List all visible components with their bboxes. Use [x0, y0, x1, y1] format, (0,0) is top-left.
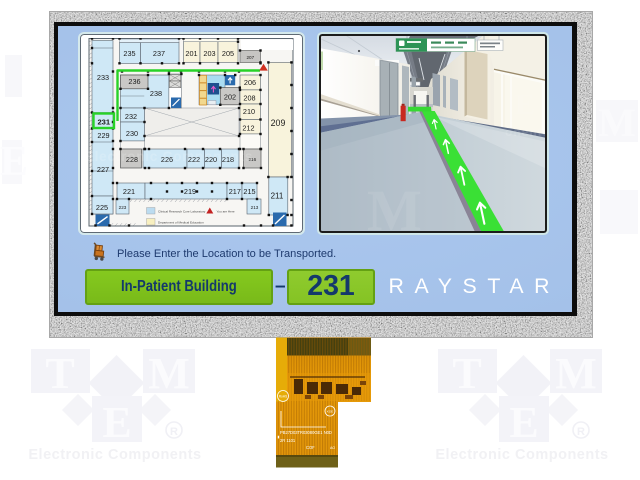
svg-text:M: M [148, 349, 190, 398]
svg-text:227: 227 [97, 165, 109, 174]
svg-text:225: 225 [96, 203, 108, 212]
svg-text:229: 229 [97, 131, 109, 140]
svg-text:209: 209 [271, 118, 286, 128]
svg-text:PB27D03TR03080GE1 N0D: PB27D03TR03080GE1 N0D [280, 430, 332, 435]
svg-text:206: 206 [244, 78, 256, 87]
svg-text:M: M [555, 349, 597, 398]
svg-text:R: R [577, 426, 585, 438]
svg-text:221: 221 [123, 187, 135, 196]
svg-text:Clinical Research Core Laborat: Clinical Research Core Laboratory [158, 210, 206, 214]
svg-text:T: T [452, 349, 481, 398]
svg-text:E: E [509, 398, 538, 447]
svg-text:AO: AO [330, 446, 335, 450]
svg-text:COF: COF [306, 445, 315, 450]
svg-text:You are Here: You are Here [217, 210, 235, 214]
svg-text:Electronic Components: Electronic Components [28, 447, 201, 463]
svg-text:201: 201 [185, 49, 197, 58]
svg-text:R: R [170, 426, 178, 438]
svg-text:211: 211 [271, 192, 284, 201]
svg-text:233: 233 [97, 73, 109, 82]
svg-text:236: 236 [128, 77, 140, 86]
svg-text:231: 231 [97, 118, 110, 127]
svg-text:217: 217 [229, 187, 241, 196]
svg-text:onents: onents [505, 125, 547, 139]
svg-text:T: T [45, 349, 74, 398]
svg-text:223: 223 [119, 205, 127, 210]
svg-text:M: M [598, 100, 636, 145]
svg-text:KOE: KOE [327, 410, 333, 414]
svg-text:▮: ▮ [278, 435, 280, 439]
svg-text:M: M [367, 178, 422, 233]
svg-text:Electronic Components: Electronic Components [435, 447, 608, 463]
svg-text:207: 207 [246, 55, 254, 60]
svg-text:203: 203 [203, 49, 215, 58]
svg-text:202: 202 [224, 93, 236, 102]
svg-text:230: 230 [126, 129, 138, 138]
svg-text:232: 232 [125, 112, 137, 121]
svg-text:238: 238 [150, 89, 162, 98]
svg-text:2R 1101: 2R 1101 [280, 438, 296, 443]
svg-text:RoHS: RoHS [279, 395, 288, 399]
svg-text:210: 210 [243, 107, 255, 116]
svg-text:212: 212 [242, 124, 254, 133]
svg-text:E: E [0, 139, 28, 185]
svg-text:Department of Medical Educatio: Department of Medical Education [158, 221, 204, 225]
svg-text:205: 205 [222, 49, 234, 58]
svg-text:215: 215 [243, 187, 255, 196]
svg-text:235: 235 [123, 49, 135, 58]
svg-text:219: 219 [184, 187, 196, 196]
svg-text:208: 208 [243, 94, 255, 103]
svg-text:Electronic Components: Electronic Components [85, 149, 253, 164]
svg-text:237: 237 [153, 49, 165, 58]
svg-text:E: E [102, 398, 131, 447]
svg-text:E: E [515, 88, 535, 121]
svg-text:213: 213 [251, 205, 259, 210]
